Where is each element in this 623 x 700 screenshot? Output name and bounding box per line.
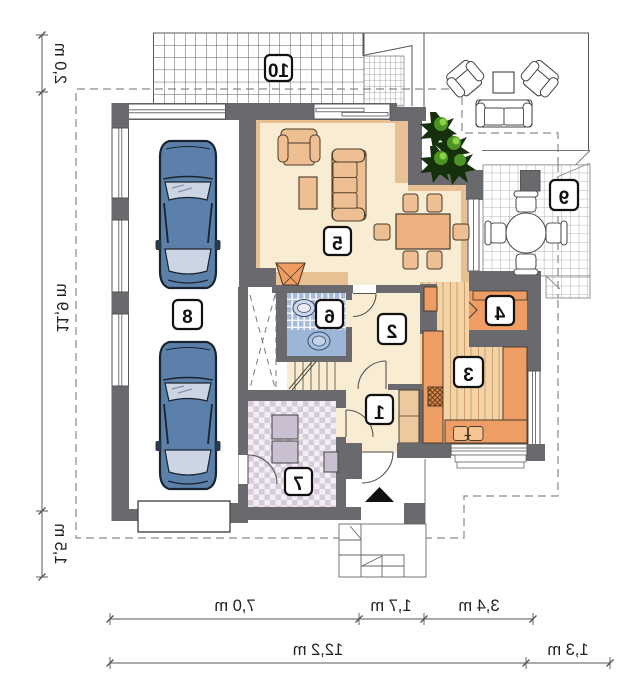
svg-text:7: 7 — [293, 474, 304, 495]
svg-text:1,7 m: 1,7 m — [370, 597, 411, 615]
svg-text:8: 8 — [182, 307, 193, 328]
svg-text:1,5 m: 1,5 m — [51, 523, 69, 564]
svg-text:7,0 m: 7,0 m — [214, 597, 255, 615]
svg-text:10: 10 — [268, 61, 289, 82]
svg-text:11,9 m: 11,9 m — [53, 283, 71, 332]
svg-text:6: 6 — [324, 307, 335, 328]
svg-text:9: 9 — [559, 188, 570, 209]
svg-text:5: 5 — [332, 234, 343, 255]
svg-text:1: 1 — [374, 403, 385, 424]
svg-text:3: 3 — [463, 365, 474, 386]
svg-text:2,0 m: 2,0 m — [51, 43, 69, 84]
svg-text:3,4 m: 3,4 m — [458, 597, 499, 615]
svg-text:12,2 m: 12,2 m — [293, 641, 343, 659]
svg-text:2: 2 — [387, 322, 398, 343]
svg-text:4: 4 — [494, 304, 505, 325]
svg-text:1,3 m: 1,3 m — [547, 641, 588, 659]
